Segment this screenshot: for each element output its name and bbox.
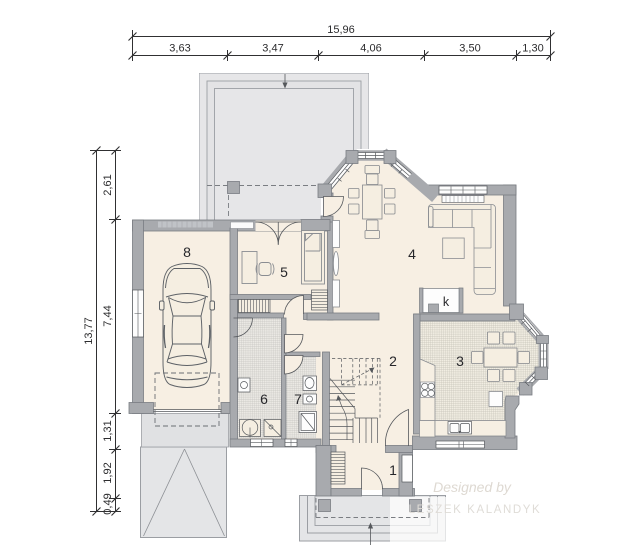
svg-text:Designed by: Designed by (433, 479, 512, 495)
svg-text:2,61: 2,61 (102, 174, 114, 195)
svg-text:LESZEK KALANDYK: LESZEK KALANDYK (409, 504, 542, 516)
svg-text:3,63: 3,63 (169, 43, 190, 55)
svg-text:7: 7 (294, 391, 302, 407)
svg-text:3,50: 3,50 (459, 43, 480, 55)
svg-text:5: 5 (280, 264, 288, 280)
svg-text:15,96: 15,96 (327, 24, 355, 36)
svg-text:1,31: 1,31 (102, 420, 114, 441)
svg-text:6: 6 (260, 391, 268, 407)
svg-text:3: 3 (456, 353, 464, 369)
svg-text:1: 1 (389, 462, 397, 478)
svg-text:0,49: 0,49 (102, 493, 114, 514)
svg-text:8: 8 (183, 244, 191, 260)
svg-text:k: k (443, 295, 450, 309)
svg-text:1,92: 1,92 (102, 462, 114, 483)
svg-text:13,77: 13,77 (83, 317, 95, 345)
svg-text:2: 2 (389, 353, 397, 369)
svg-text:4: 4 (408, 246, 416, 262)
svg-text:3,47: 3,47 (262, 43, 283, 55)
svg-text:4,06: 4,06 (360, 43, 381, 55)
svg-text:1,30: 1,30 (522, 43, 543, 55)
svg-text:7,44: 7,44 (102, 305, 114, 326)
